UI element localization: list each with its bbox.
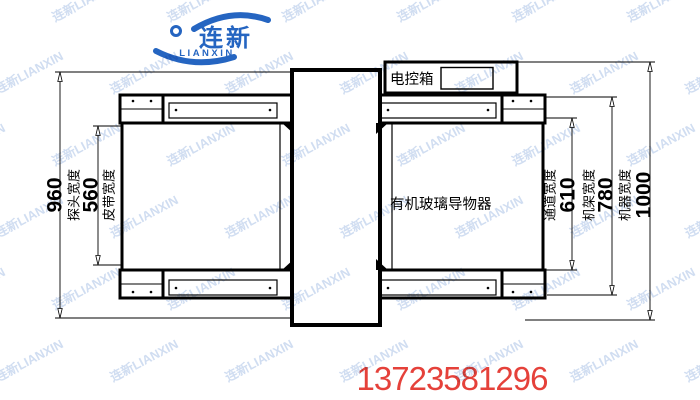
watermark-text: 连新LIANXIN xyxy=(624,0,697,25)
watermark-text: 连新LIANXIN xyxy=(394,0,467,25)
watermark-text: 连新LIANXIN xyxy=(0,192,66,240)
watermark-text: 连新LIANXIN xyxy=(682,192,700,240)
watermark-text: 连新LIANXIN xyxy=(624,120,697,168)
watermark-text: 连新LIANXIN xyxy=(567,336,640,384)
watermark-text: 连新LIANXIN xyxy=(107,192,180,240)
gusset-bottom-left xyxy=(282,259,294,270)
dim-560-label: 皮带宽度 xyxy=(101,169,116,221)
phone-number: 13723581296 xyxy=(357,360,548,397)
watermark-text: 连新LIANXIN xyxy=(0,120,8,168)
dim-1000-value: 1000 xyxy=(633,172,656,219)
watermark-text: 连新LIANXIN xyxy=(49,0,122,25)
watermark-text: 连新LIANXIN xyxy=(107,336,180,384)
watermark-text: 连新LIANXIN xyxy=(567,48,640,96)
watermark-text: 连新LIANXIN xyxy=(0,0,8,25)
watermark-text: 连新LIANXIN xyxy=(222,192,295,240)
logo-en-text: LIANXIN xyxy=(179,48,235,59)
watermark-text: 连新LIANXIN xyxy=(682,336,700,384)
logo-dot-icon xyxy=(172,27,181,36)
watermark-text: 连新LIANXIN xyxy=(624,264,697,312)
dim-560-value: 560 xyxy=(80,177,103,212)
scanner-drawing-page: 电控箱 有机玻璃导物器 960 探头宽度 560 皮带宽度 通道宽度 610 机… xyxy=(0,0,700,400)
control-box-label: 电控箱 xyxy=(390,71,434,88)
watermark-text: 连新LIANXIN xyxy=(0,264,8,312)
watermark-text: 连新LIANXIN xyxy=(279,0,352,25)
watermark-text: 连新LIANXIN xyxy=(682,48,700,96)
watermark-text: 连新LIANXIN xyxy=(222,336,295,384)
dim-610-label: 通道宽度 xyxy=(542,169,557,221)
watermark-text: 连新LIANXIN xyxy=(509,0,582,25)
dim-610-value: 610 xyxy=(557,177,580,212)
watermark-text: 连新LIANXIN xyxy=(394,120,467,168)
watermark-text: 连新LIANXIN xyxy=(0,336,66,384)
gusset-top-left xyxy=(282,123,294,134)
watermark-text: 连新LIANXIN xyxy=(164,0,237,25)
machine-top-view-drawing: 电控箱 有机玻璃导物器 960 探头宽度 560 皮带宽度 通道宽度 610 机… xyxy=(0,0,700,400)
watermark-text: 连新LIANXIN xyxy=(164,120,237,168)
